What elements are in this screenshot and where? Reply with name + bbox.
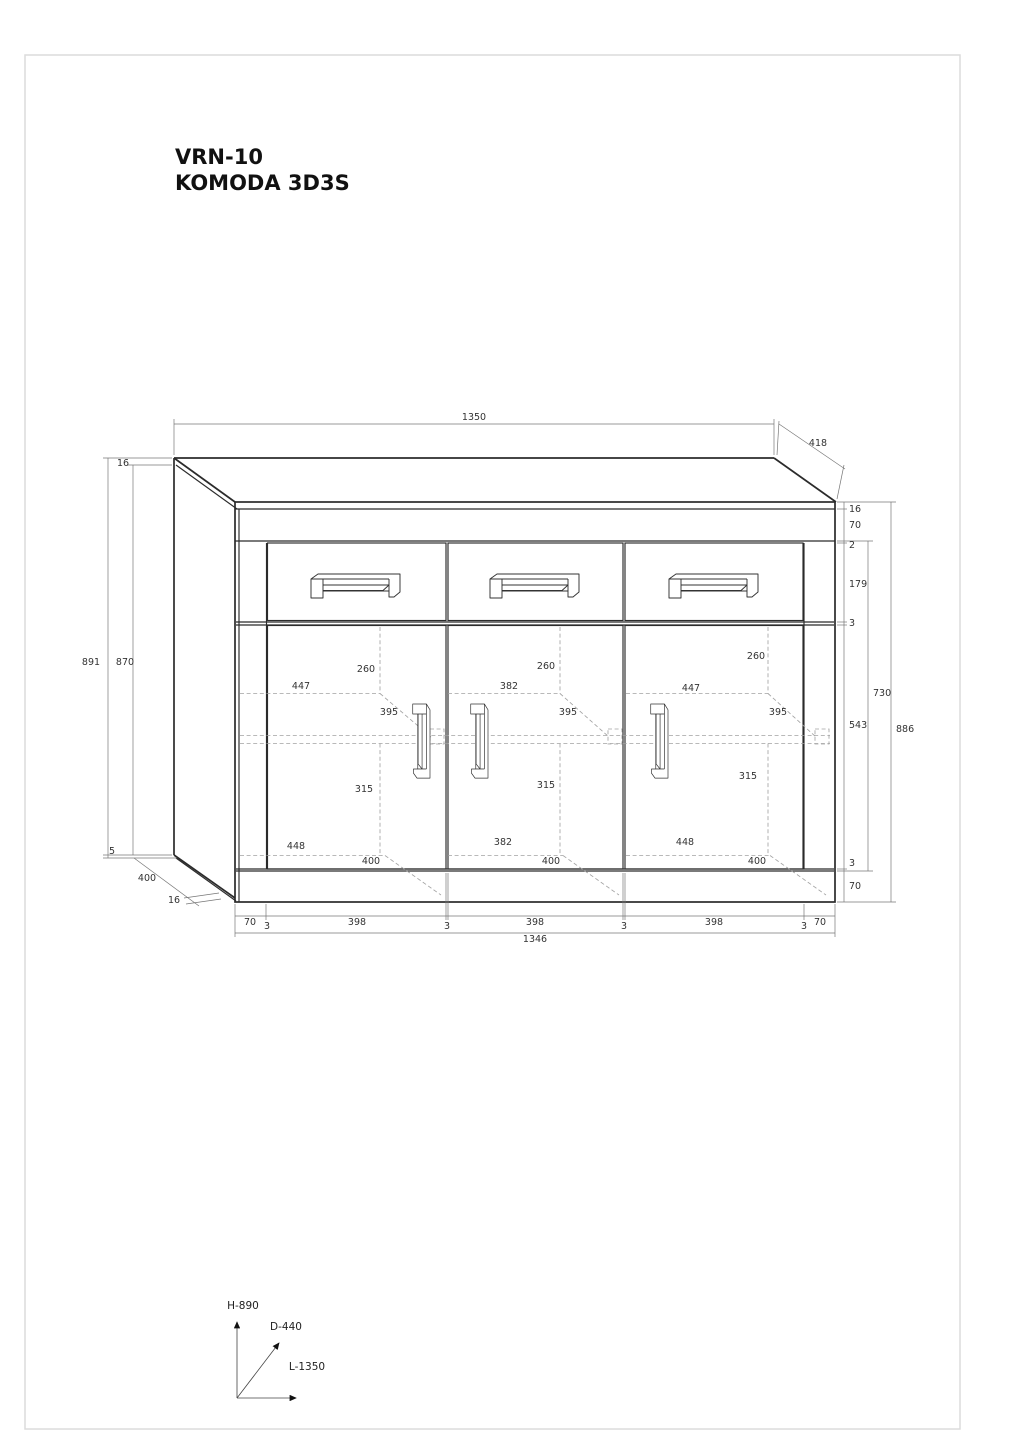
dim-door3-bottom: 448	[676, 837, 694, 848]
dim-door1-lower: 315	[355, 784, 373, 795]
dim-left-total: 891	[82, 657, 100, 668]
dim-door1-top: 260	[357, 664, 375, 675]
dimension-lines	[103, 419, 896, 937]
dimension-labels: 1350 418 16 891 870 5 400 16 16 70 2 179…	[82, 412, 914, 945]
axis-height-label: H-890	[227, 1300, 259, 1312]
dim-door3-upper: 447	[682, 683, 700, 694]
dim-door1-depth: 400	[362, 856, 380, 867]
dim-door2-lower: 315	[537, 780, 555, 791]
drawing-page: VRN-10 KOMODA 3D3S	[0, 0, 1024, 1449]
dim-right-730: 730	[873, 688, 891, 699]
handles	[311, 574, 758, 778]
drawing-code: VRN-10	[175, 145, 263, 169]
dim-left-thickness: 16	[168, 895, 180, 906]
door-handle	[413, 704, 430, 778]
dim-right-179: 179	[849, 579, 867, 590]
technical-drawing: VRN-10 KOMODA 3D3S	[0, 0, 1024, 1449]
dim-bottom-total: 1346	[523, 934, 547, 945]
dim-door2-top: 260	[537, 661, 555, 672]
dim-left-depth: 400	[138, 873, 156, 884]
dim-bottom-398b: 398	[526, 917, 544, 928]
drawer-handle	[311, 574, 400, 598]
dim-top-depth: 418	[809, 438, 827, 449]
drawer-handle	[669, 574, 758, 598]
dim-bottom-3d: 3	[801, 921, 807, 932]
dim-right-2: 2	[849, 540, 855, 551]
dim-bottom-70b: 70	[814, 917, 826, 928]
dim-top-width: 1350	[462, 412, 486, 423]
dim-door2-depth: 400	[542, 856, 560, 867]
dim-door3-lower: 315	[739, 771, 757, 782]
dim-right-886: 886	[896, 724, 914, 735]
dim-door1-shelf: 395	[380, 707, 398, 718]
dim-door3-top: 260	[747, 651, 765, 662]
dim-right-543: 543	[849, 720, 867, 731]
dim-right-16: 16	[849, 504, 861, 515]
dim-door2-shelf: 395	[559, 707, 577, 718]
dim-right-3a: 3	[849, 618, 855, 629]
dim-bottom-70a: 70	[244, 917, 256, 928]
drawer-handle	[490, 574, 579, 598]
axis-depth-label: D-440	[270, 1321, 302, 1333]
page-border	[25, 55, 960, 1429]
door-front-3	[625, 626, 803, 870]
dim-bottom-398a: 398	[348, 917, 366, 928]
door-handle	[471, 704, 488, 778]
dim-bottom-398c: 398	[705, 917, 723, 928]
dim-bottom-3b: 3	[444, 921, 450, 932]
dim-right-3b: 3	[849, 858, 855, 869]
dim-door2-bottom: 382	[494, 837, 512, 848]
axis-triad: H-890 D-440 L-1350	[227, 1300, 325, 1398]
door-front-2	[448, 626, 623, 870]
cabinet-outline	[174, 458, 836, 902]
axis-length-label: L-1350	[289, 1361, 325, 1373]
dim-door2-upper: 382	[500, 681, 518, 692]
dim-door3-depth: 400	[748, 856, 766, 867]
hidden-lines	[240, 627, 830, 895]
dim-right-70b: 70	[849, 881, 861, 892]
drawing-name: KOMODA 3D3S	[175, 171, 350, 195]
door-handle	[651, 704, 668, 778]
dim-left-panel: 16	[117, 458, 129, 469]
dim-right-70: 70	[849, 520, 861, 531]
dim-door3-shelf: 395	[769, 707, 787, 718]
dim-door1-upper: 447	[292, 681, 310, 692]
title-block: VRN-10 KOMODA 3D3S	[175, 145, 350, 195]
dim-left-front: 870	[116, 657, 134, 668]
dim-bottom-3a: 3	[264, 921, 270, 932]
dim-left-gap: 5	[109, 846, 115, 857]
door-fronts	[268, 626, 804, 870]
dim-door1-bottom: 448	[287, 841, 305, 852]
dim-bottom-3c: 3	[621, 921, 627, 932]
